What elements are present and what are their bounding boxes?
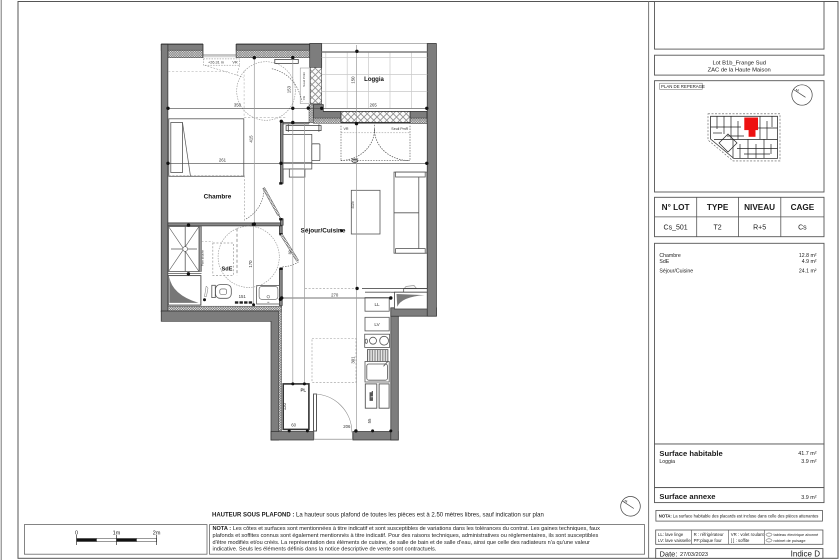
svg-text:Séjour/Cuisine: Séjour/Cuisine: [301, 227, 346, 234]
svg-text:265: 265: [370, 102, 378, 107]
svg-text:Chambre: Chambre: [659, 253, 680, 259]
svg-text:[ ] : soffite: [ ] : soffite: [731, 538, 750, 543]
svg-text:Loggia: Loggia: [659, 459, 675, 465]
svg-text:0: 0: [75, 531, 78, 537]
svg-text:270: 270: [331, 293, 339, 298]
svg-text:41.7 m²: 41.7 m²: [798, 451, 816, 457]
svg-text:301: 301: [351, 356, 356, 364]
svg-text:Seuil PmR: Seuil PmR: [391, 127, 408, 131]
svg-text:HAUTEUR SOUS PLAFOND : La haut: HAUTEUR SOUS PLAFOND : La hauteur sous p…: [212, 513, 544, 519]
svg-text:Séjour/Cuisine: Séjour/Cuisine: [659, 268, 693, 274]
svg-text:LL: LL: [374, 302, 380, 307]
svg-text:tableau électrique abonné: tableau électrique abonné: [774, 532, 819, 537]
svg-text:2m: 2m: [153, 531, 161, 537]
svg-text:R+5: R+5: [753, 225, 766, 232]
svg-text:Cs: Cs: [798, 225, 807, 232]
svg-text:T2: T2: [714, 225, 722, 232]
svg-text:Lot B1b_Frange Sud: Lot B1b_Frange Sud: [712, 60, 766, 66]
svg-text:3.9 m²: 3.9 m²: [801, 459, 816, 465]
svg-text:151: 151: [239, 294, 247, 299]
svg-text:R : réfrigérateur: R : réfrigérateur: [694, 532, 725, 537]
svg-text:Surface habitable: Surface habitable: [659, 449, 722, 458]
svg-text:350: 350: [234, 102, 242, 107]
svg-text:Surface annexe: Surface annexe: [659, 492, 715, 501]
svg-text:Chambre: Chambre: [204, 194, 232, 201]
svg-text:Pare douche: Pare douche: [201, 250, 205, 266]
svg-text:27/03/2023: 27/03/2023: [680, 552, 708, 558]
svg-text:PL: PL: [301, 388, 307, 393]
svg-text:415: 415: [248, 135, 253, 143]
svg-text:PLAN DE REPERAGE: PLAN DE REPERAGE: [661, 84, 705, 89]
svg-text:LV: lave vaisselle: LV: lave vaisselle: [658, 538, 691, 543]
svg-text:VR : volet roulant: VR : volet roulant: [731, 532, 765, 537]
svg-text:plafonds et soffites connus so: plafonds et soffites connus sont égaleme…: [213, 533, 599, 539]
svg-text:261: 261: [219, 158, 227, 163]
svg-text:24.1 m²: 24.1 m²: [799, 268, 817, 274]
svg-text:120: 120: [282, 403, 287, 411]
svg-text:NOTA: La surface habitable de: NOTA: La surface habitable des placards …: [659, 514, 819, 519]
svg-text:NIVEAU: NIVEAU: [744, 203, 775, 212]
svg-text:indicative. Seuls les éléments: indicative. Seuls les éléments définis d…: [213, 547, 437, 553]
svg-text:206: 206: [343, 424, 351, 429]
svg-text:ETEL: ETEL: [370, 391, 374, 401]
svg-text:80: 80: [288, 250, 292, 254]
svg-text:NOTA : Les côtes et surfaces s: NOTA : Les côtes et surfaces sont mentio…: [213, 526, 601, 532]
svg-text:SdE: SdE: [222, 267, 233, 273]
svg-text:N: N: [625, 499, 628, 504]
svg-text:3.9 m²: 3.9 m²: [801, 495, 816, 501]
svg-text:Date:: Date:: [660, 549, 678, 558]
svg-text:ZAC de la Haute Maison: ZAC de la Haute Maison: [708, 67, 771, 73]
svg-text:153: 153: [287, 85, 292, 93]
svg-text:TYPE: TYPE: [707, 203, 729, 212]
svg-text:415: 415: [350, 201, 355, 209]
svg-text:12.8 m²: 12.8 m²: [799, 253, 817, 259]
svg-text:N° LOT: N° LOT: [662, 203, 690, 212]
svg-text:SdE: SdE: [659, 259, 669, 265]
svg-text:robinet de puisage: robinet de puisage: [774, 538, 806, 543]
svg-text:VR: VR: [302, 95, 306, 100]
svg-text:Cs_501: Cs_501: [664, 225, 688, 232]
svg-text:LL: lave linge: LL: lave linge: [658, 532, 684, 537]
svg-text:PF:plaque four: PF:plaque four: [694, 538, 723, 543]
svg-text:VR: VR: [232, 61, 238, 65]
svg-text:4.9 m²: 4.9 m²: [802, 259, 817, 265]
svg-text:d'être modifiés et/ou créés. L: d'être modifiés et/ou créés. La représen…: [213, 540, 591, 546]
svg-text:150: 150: [351, 76, 356, 84]
svg-text:55: 55: [367, 418, 372, 423]
svg-text:+26.31 m: +26.31 m: [208, 61, 224, 65]
svg-text:VR: VR: [344, 127, 349, 131]
svg-text:Loggia: Loggia: [364, 77, 384, 83]
svg-text:365: 365: [351, 158, 359, 163]
svg-text:CAGE: CAGE: [791, 203, 815, 212]
svg-text:60: 60: [291, 423, 296, 428]
svg-text:N: N: [796, 88, 799, 93]
svg-text:Seuil PmR: Seuil PmR: [302, 71, 306, 86]
svg-text:1m: 1m: [113, 531, 121, 537]
svg-text:Indice D: Indice D: [791, 550, 821, 559]
svg-text:170: 170: [248, 260, 253, 268]
